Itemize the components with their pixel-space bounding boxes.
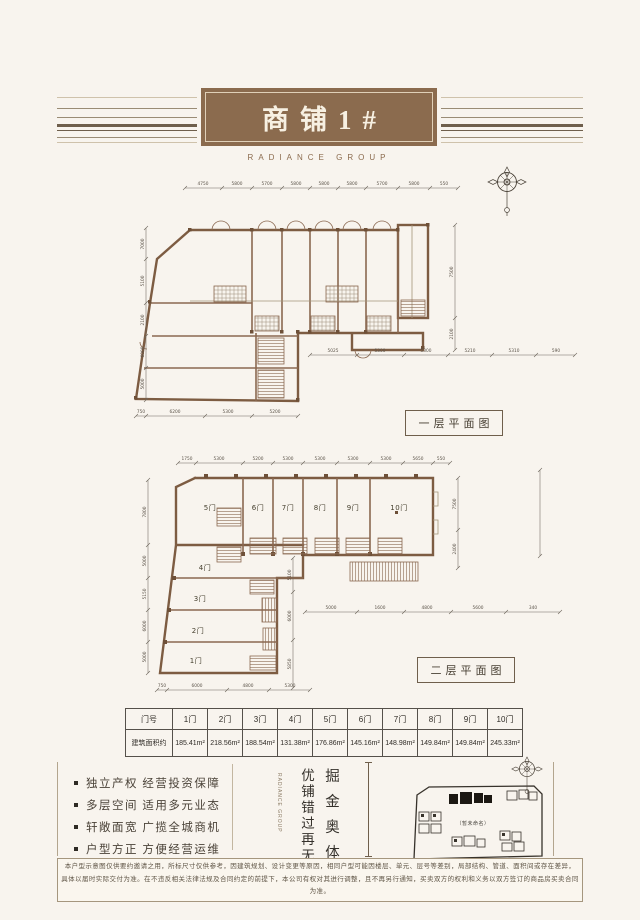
svg-text:5300: 5300 bbox=[348, 456, 359, 462]
col-header: 3门 bbox=[243, 709, 278, 730]
plan2-label: 二层平面图 bbox=[417, 657, 515, 683]
disclaimer-line: 具体以届时实际交付为准。在不违反相关法律法规及合同约定的前提下，本公司有权对其进… bbox=[58, 874, 582, 899]
plan1-right-dimensions: 7500 2100 bbox=[449, 223, 457, 352]
svg-text:5800: 5800 bbox=[291, 181, 302, 187]
svg-text:5310: 5310 bbox=[509, 348, 520, 354]
svg-text:5300: 5300 bbox=[285, 683, 296, 689]
col-header: 7门 bbox=[383, 709, 418, 730]
svg-text:5025: 5025 bbox=[328, 348, 339, 354]
svg-text:5800: 5800 bbox=[347, 181, 358, 187]
svg-text:5000: 5000 bbox=[140, 378, 146, 389]
svg-text:5300: 5300 bbox=[223, 409, 234, 415]
svg-text:2门: 2门 bbox=[192, 626, 204, 635]
page-title: 商铺1# bbox=[205, 92, 433, 142]
plan2-top-dimensions: 1750 5300 5200 5300 5300 5300 5300 5650 … bbox=[176, 456, 452, 465]
bullet-square-icon bbox=[74, 803, 78, 807]
selling-points: 独立产权 经营投资保障 多层空间 适用多元业态 轩敞面宽 广揽全城商机 户型方正… bbox=[74, 777, 220, 865]
svg-text:5300: 5300 bbox=[375, 348, 386, 354]
svg-text:7500: 7500 bbox=[449, 266, 455, 277]
selling-point: 多层空间 适用多元业态 bbox=[74, 799, 220, 811]
slogan-column-right: 掘金奥体 bbox=[321, 768, 342, 870]
plan1-label: 一层平面图 bbox=[405, 410, 503, 436]
area-cell: 218.56m² bbox=[208, 730, 243, 757]
disclaimer-box: 本户型示意图仅供要约邀请之用，所标尺寸仅供参考，因建筑规划、设计变更等原因，相同… bbox=[57, 858, 583, 902]
col-header: 10门 bbox=[488, 709, 523, 730]
map-note: （暂未命名） bbox=[456, 820, 489, 827]
plan2-right-dimensions: 7500 2400 bbox=[452, 468, 542, 570]
col-header: 9门 bbox=[453, 709, 488, 730]
svg-text:5650: 5650 bbox=[413, 456, 424, 462]
plan2-stairs bbox=[217, 508, 418, 670]
svg-text:5800: 5800 bbox=[409, 181, 420, 187]
svg-text:5300: 5300 bbox=[283, 456, 294, 462]
svg-text:5300: 5300 bbox=[315, 456, 326, 462]
col-header: 4门 bbox=[278, 709, 313, 730]
svg-text:590: 590 bbox=[552, 348, 560, 354]
svg-text:6200: 6200 bbox=[170, 409, 181, 415]
bullet-square-icon bbox=[74, 825, 78, 829]
band-right-rule bbox=[553, 762, 554, 856]
svg-text:5300: 5300 bbox=[421, 348, 432, 354]
svg-text:5800: 5800 bbox=[319, 181, 330, 187]
svg-text:4门: 4门 bbox=[199, 563, 211, 572]
band-divider-1 bbox=[232, 764, 233, 850]
svg-text:5000: 5000 bbox=[142, 651, 148, 662]
svg-text:550: 550 bbox=[437, 456, 445, 462]
svg-text:750: 750 bbox=[137, 409, 145, 415]
title-box: 商铺1# bbox=[201, 88, 437, 146]
svg-text:550: 550 bbox=[440, 181, 448, 187]
plan2-bottom-right-dimensions: 5000 1600 4800 5600 340 bbox=[303, 605, 562, 614]
plan2-unit-labels: 5门 6门 7门 8门 9门 10门 4门 3门 2门 1门 bbox=[190, 503, 408, 665]
band-left-rule bbox=[57, 762, 58, 856]
plan1-mid-dimensions: 5025 5300 5300 5210 5310 590 bbox=[308, 348, 577, 357]
table-header-row: 门号 1门 2门 3门 4门 5门 6门 7门 8门 9门 10门 bbox=[126, 709, 523, 730]
highlighted-shop-building bbox=[449, 792, 492, 804]
col-header: 门号 bbox=[126, 709, 173, 730]
svg-text:2100: 2100 bbox=[140, 314, 146, 325]
svg-text:3门: 3门 bbox=[194, 594, 206, 603]
svg-text:7000: 7000 bbox=[140, 238, 146, 249]
brand-subtitle: RADIANCE GROUP bbox=[201, 153, 437, 162]
plan2-left-dimensions: 7800 5000 5150 6000 5000 bbox=[142, 478, 150, 675]
svg-text:6000: 6000 bbox=[192, 683, 203, 689]
selling-point: 独立产权 经营投资保障 bbox=[74, 777, 220, 789]
bullet-square-icon bbox=[74, 847, 78, 851]
svg-text:5000: 5000 bbox=[326, 605, 337, 611]
area-cell: 188.54m² bbox=[243, 730, 278, 757]
plan1-left-dimensions: 7000 5100 2100 6000 5000 bbox=[140, 226, 148, 402]
svg-text:5700: 5700 bbox=[377, 181, 388, 187]
svg-text:6000: 6000 bbox=[287, 610, 293, 621]
svg-text:9门: 9门 bbox=[347, 503, 359, 512]
svg-text:4800: 4800 bbox=[422, 605, 433, 611]
svg-text:5700: 5700 bbox=[262, 181, 273, 187]
svg-text:4750: 4750 bbox=[198, 181, 209, 187]
svg-text:5200: 5200 bbox=[253, 456, 264, 462]
svg-text:5600: 5600 bbox=[473, 605, 484, 611]
col-header: 5门 bbox=[313, 709, 348, 730]
floor-plan-level-1: 4750 5800 5700 5800 5800 5800 5700 5800 … bbox=[55, 170, 585, 455]
selling-point-text: 户型方正 方便经营运维 bbox=[86, 841, 220, 857]
svg-text:7800: 7800 bbox=[142, 506, 148, 517]
svg-text:1750: 1750 bbox=[182, 456, 193, 462]
area-cell: 149.84m² bbox=[418, 730, 453, 757]
svg-text:7500: 7500 bbox=[452, 498, 458, 509]
plan2-bottom-dimensions: 750 6000 4800 5300 bbox=[155, 683, 312, 692]
svg-text:6000: 6000 bbox=[140, 346, 146, 357]
svg-text:1600: 1600 bbox=[375, 605, 386, 611]
slogan-column-left: 优铺错过再无 bbox=[296, 768, 316, 864]
svg-text:5850: 5850 bbox=[287, 658, 293, 669]
svg-text:2400: 2400 bbox=[452, 543, 458, 554]
plan1-top-dimensions: 4750 5800 5700 5800 5800 5800 5700 5800 … bbox=[183, 181, 460, 190]
area-cell: 185.41m² bbox=[173, 730, 208, 757]
plan1-bottom-dimensions: 750 6200 5300 5200 bbox=[134, 409, 300, 418]
brochure-page: 商铺1# RADIANCE GROUP bbox=[0, 0, 640, 920]
selling-point-text: 独立产权 经营投资保障 bbox=[86, 775, 220, 791]
col-header: 6门 bbox=[348, 709, 383, 730]
col-header: 8门 bbox=[418, 709, 453, 730]
svg-text:5300: 5300 bbox=[214, 456, 225, 462]
area-cell: 176.86m² bbox=[313, 730, 348, 757]
table-area-row: 建筑面积约 185.41m² 218.56m² 188.54m² 131.38m… bbox=[126, 730, 523, 757]
col-header: 1门 bbox=[173, 709, 208, 730]
selling-point-text: 多层空间 适用多元业态 bbox=[86, 797, 220, 813]
plan2-inner-dimensions: 5100 6000 5850 bbox=[287, 556, 295, 690]
unit-area-table: 门号 1门 2门 3门 4门 5门 6门 7门 8门 9门 10门 建筑面积约 … bbox=[125, 708, 523, 757]
band-divider-2 bbox=[368, 762, 369, 857]
area-cell: 131.38m² bbox=[278, 730, 313, 757]
svg-text:5300: 5300 bbox=[381, 456, 392, 462]
svg-text:5150: 5150 bbox=[142, 588, 148, 599]
svg-text:5210: 5210 bbox=[465, 348, 476, 354]
svg-text:750: 750 bbox=[158, 683, 166, 689]
svg-text:340: 340 bbox=[529, 605, 537, 611]
svg-text:1门: 1门 bbox=[190, 656, 202, 665]
svg-text:7门: 7门 bbox=[282, 503, 294, 512]
svg-text:5000: 5000 bbox=[142, 555, 148, 566]
area-cell: 145.16m² bbox=[348, 730, 383, 757]
svg-text:5100: 5100 bbox=[287, 569, 293, 580]
svg-text:5100: 5100 bbox=[140, 275, 146, 286]
svg-text:5门: 5门 bbox=[204, 503, 216, 512]
area-cell: 149.84m² bbox=[453, 730, 488, 757]
row-label: 建筑面积约 bbox=[126, 730, 173, 757]
area-cell: 245.33m² bbox=[488, 730, 523, 757]
svg-text:10门: 10门 bbox=[390, 503, 407, 512]
area-cell: 148.98m² bbox=[383, 730, 418, 757]
compass-rose-icon bbox=[511, 756, 543, 798]
bullet-square-icon bbox=[74, 781, 78, 785]
selling-point-text: 轩敞面宽 广揽全城商机 bbox=[86, 819, 220, 835]
header-rule-lines-left bbox=[57, 97, 197, 145]
col-header: 2门 bbox=[208, 709, 243, 730]
selling-point: 户型方正 方便经营运维 bbox=[74, 843, 220, 855]
header-rule-lines-right bbox=[441, 97, 583, 145]
svg-text:4800: 4800 bbox=[243, 683, 254, 689]
disclaimer-line: 本户型示意图仅供要约邀请之用，所标尺寸仅供参考，因建筑规划、设计变更等原因，相同… bbox=[58, 861, 582, 873]
selling-point: 轩敞面宽 广揽全城商机 bbox=[74, 821, 220, 833]
svg-text:2100: 2100 bbox=[449, 328, 455, 339]
vertical-brand-text: RADIANCE GROUP bbox=[276, 773, 282, 833]
svg-text:6门: 6门 bbox=[252, 503, 264, 512]
svg-text:5800: 5800 bbox=[232, 181, 243, 187]
svg-text:5200: 5200 bbox=[270, 409, 281, 415]
svg-text:6000: 6000 bbox=[142, 620, 148, 631]
svg-text:8门: 8门 bbox=[314, 503, 326, 512]
